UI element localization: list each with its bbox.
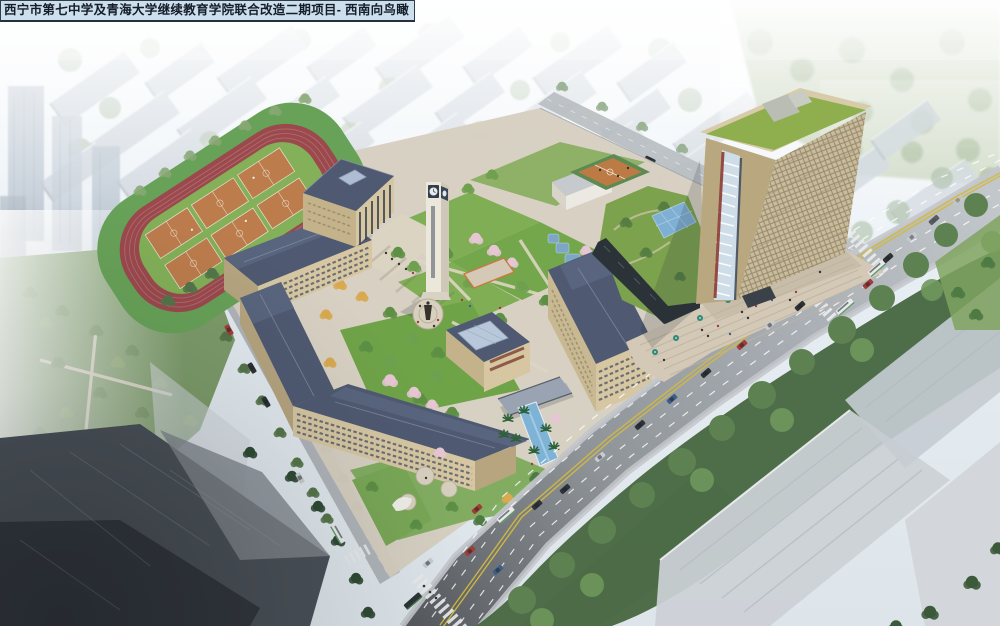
title-bar: 西宁市第七中学及青海大学继续教育学院联合改造二期项目- 西南向鸟瞰 [0, 0, 415, 22]
vignette [0, 0, 1000, 626]
title-text: 西宁市第七中学及青海大学继续教育学院联合改造二期项目- 西南向鸟瞰 [4, 3, 409, 17]
screenshot-root: 西宁市第七中学及青海大学继续教育学院联合改造二期项目- 西南向鸟瞰 [0, 0, 1000, 626]
aerial-rendering [0, 0, 1000, 626]
